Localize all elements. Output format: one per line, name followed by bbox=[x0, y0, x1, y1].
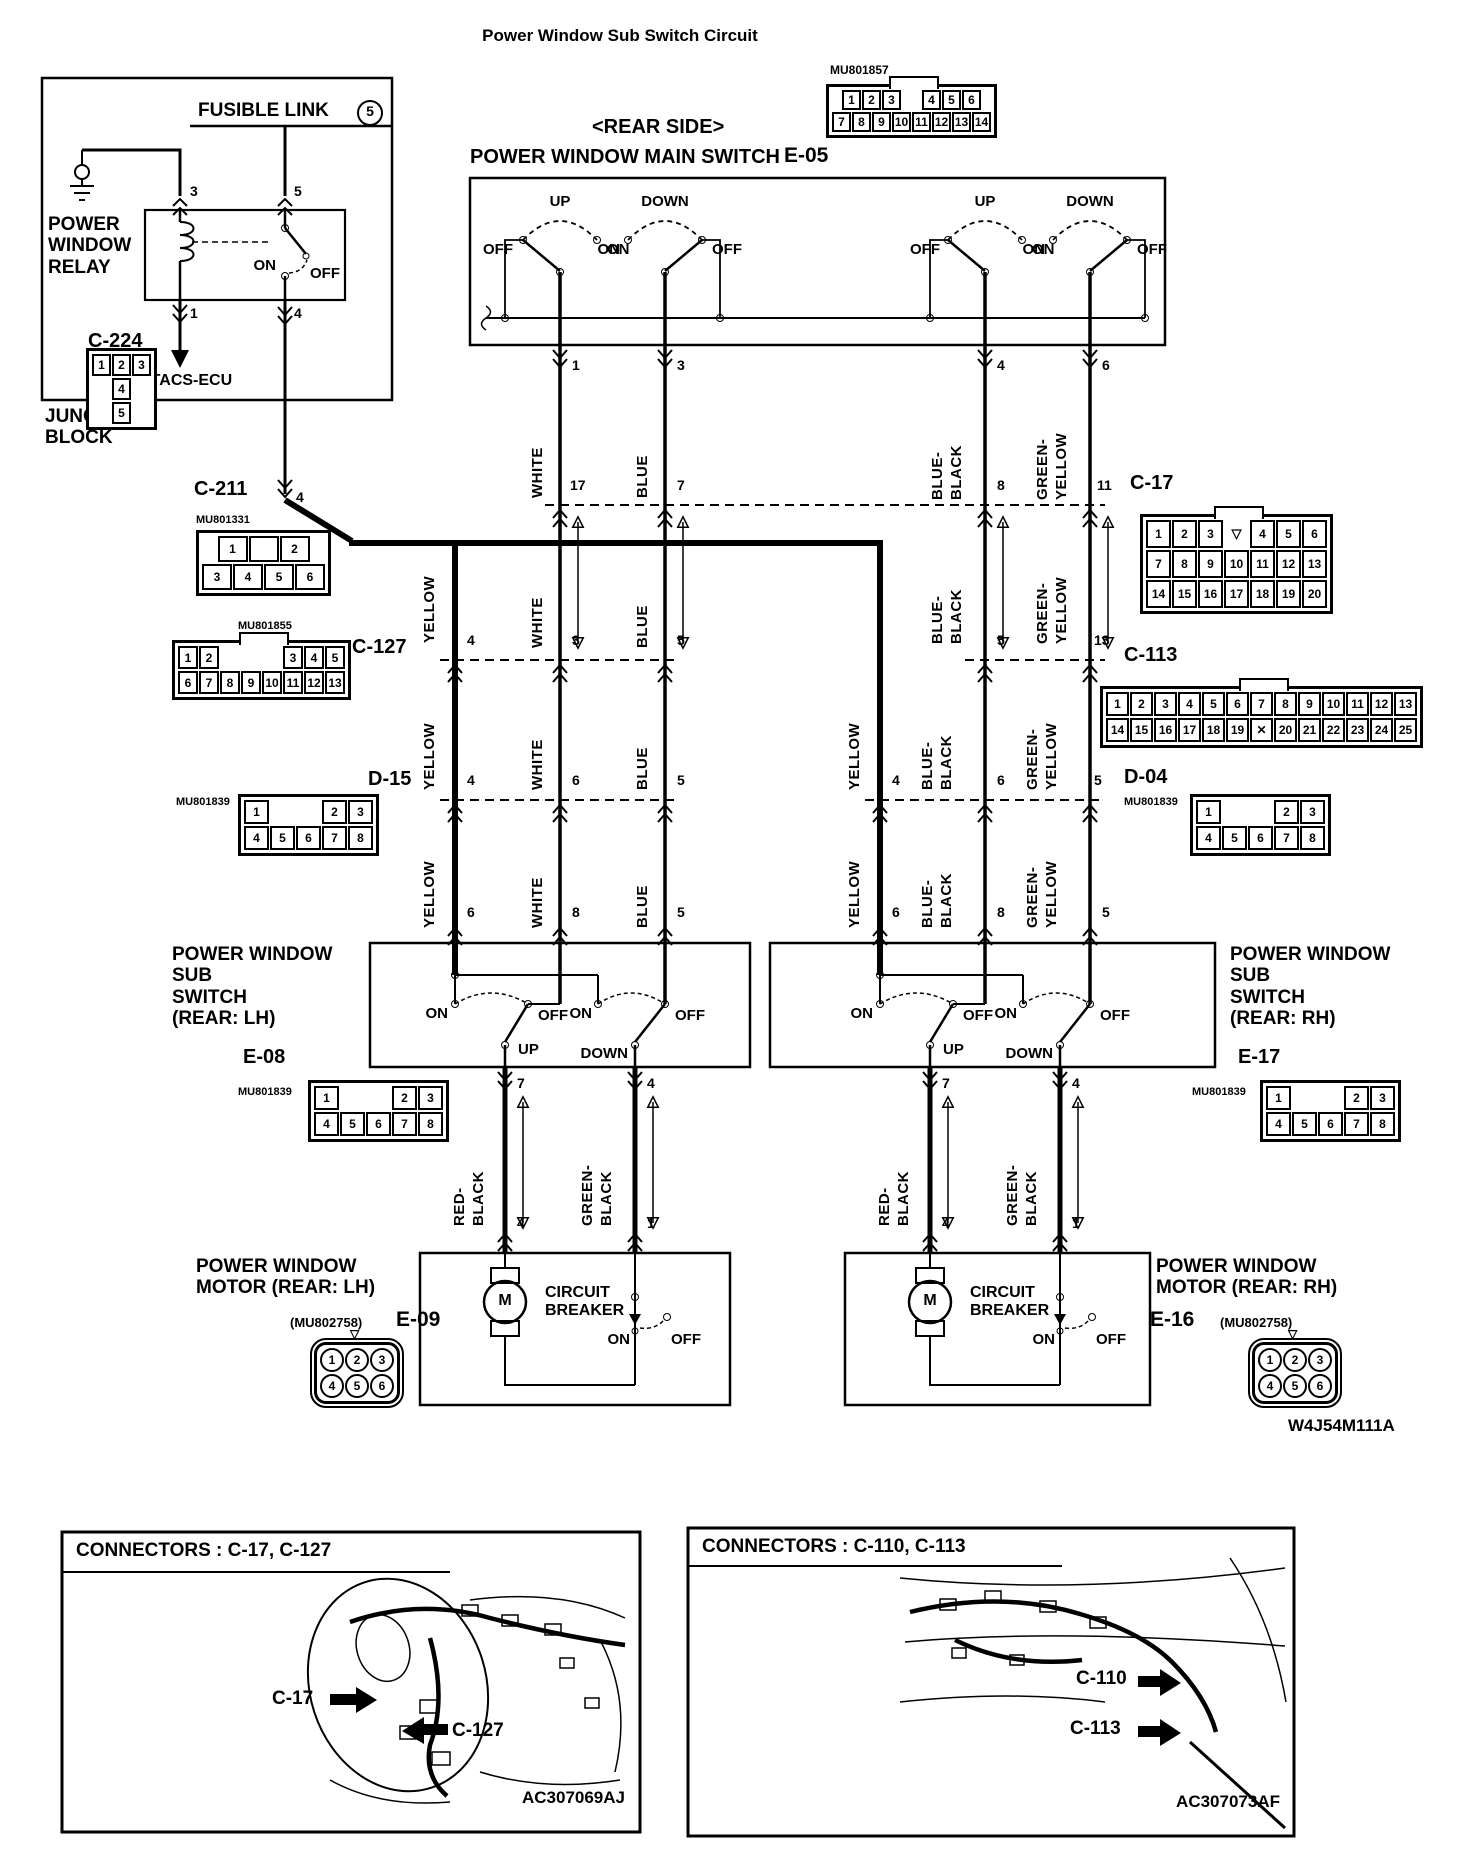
motor-rh-box bbox=[845, 1253, 1150, 1405]
e05-name: E-05 bbox=[784, 144, 828, 168]
wire-label-red-black: RED- BLACK bbox=[875, 1098, 913, 1226]
wire-yellow-feed bbox=[285, 500, 883, 943]
sw2-on: ON bbox=[562, 242, 620, 259]
relay-off-label: OFF bbox=[310, 266, 340, 283]
breaker-rh-off: OFF bbox=[1096, 1332, 1126, 1349]
d15-pin-4: 4 bbox=[467, 773, 475, 789]
d04-pin-6: 6 bbox=[997, 773, 1005, 789]
e08-out-pin-7: 7 bbox=[517, 1076, 525, 1092]
wire-label-green-yellow: GREEN- YELLOW bbox=[1023, 804, 1061, 928]
wire-label-blue: BLUE bbox=[633, 378, 655, 498]
wire-label-white: WHITE bbox=[528, 378, 550, 498]
e05-out-pin-1: 1 bbox=[572, 358, 580, 374]
c113-connector: 12345678910111213141516171819✕2021222324… bbox=[1100, 686, 1423, 748]
d15-pin-6: 6 bbox=[572, 773, 580, 789]
motor-lh-box bbox=[420, 1253, 730, 1405]
e17-in-pin-8: 8 bbox=[997, 905, 1005, 921]
d04-name: D-04 bbox=[1124, 766, 1167, 788]
rear-harness-illustration bbox=[900, 1558, 1286, 1828]
e17-out-pin-7: 7 bbox=[942, 1076, 950, 1092]
sw4-off: OFF bbox=[1137, 242, 1167, 259]
rear-side-label: <REAR SIDE> bbox=[592, 116, 724, 138]
e05-out-pin-4: 4 bbox=[997, 358, 1005, 374]
c113-pin-5: 5 bbox=[997, 633, 1005, 649]
c211-name: C-211 bbox=[194, 478, 247, 500]
d15-name: D-15 bbox=[368, 768, 411, 790]
e05-connector: 1234567891011121314 bbox=[826, 84, 997, 138]
d04-connector: 12345678 bbox=[1190, 794, 1331, 856]
page-title: Power Window Sub Switch Circuit bbox=[385, 26, 855, 45]
sw2-off: OFF bbox=[712, 242, 742, 259]
relay-pin-5: 5 bbox=[294, 184, 302, 200]
e09-name: E-09 bbox=[396, 1308, 440, 1332]
wire-label-yellow: YELLOW bbox=[845, 808, 867, 928]
d15-connector: 12345678 bbox=[238, 794, 379, 856]
footer-right-c110-tag: C-110 bbox=[1076, 1668, 1127, 1689]
c127-pin-3: 3 bbox=[572, 633, 580, 649]
sw2-dir: DOWN bbox=[625, 194, 705, 211]
breaker-lh-off: OFF bbox=[671, 1332, 701, 1349]
rh-sw2-off: OFF bbox=[1100, 1008, 1130, 1025]
e16-pin-1: 1 bbox=[1072, 1216, 1080, 1232]
rh-sw2-on: ON bbox=[973, 1006, 1017, 1023]
c17-pin-17: 17 bbox=[570, 478, 586, 494]
rh-up-label: UP bbox=[943, 1042, 964, 1059]
e16-part: (MU802758) bbox=[1220, 1316, 1292, 1331]
c113-pin-13: 13 bbox=[1094, 633, 1110, 649]
rh-down-label: DOWN bbox=[983, 1046, 1053, 1063]
wire-label-yellow: YELLOW bbox=[845, 668, 867, 790]
wire-label-green-black: GREEN- BLACK bbox=[578, 1098, 616, 1226]
footer-right-c113-tag: C-113 bbox=[1070, 1718, 1121, 1739]
diagram-id: W4J54M111A bbox=[1288, 1416, 1395, 1435]
relay-label: POWER WINDOW RELAY bbox=[48, 214, 131, 278]
wire-label-blue-black: BLUE- BLACK bbox=[918, 664, 956, 790]
e08-name: E-08 bbox=[243, 1046, 285, 1068]
motor-entry-chevrons bbox=[498, 1234, 1067, 1251]
c211-connector: 123456 bbox=[196, 530, 331, 596]
e08-connector: 12345678 bbox=[308, 1080, 449, 1142]
c17-pin-8: 8 bbox=[997, 478, 1005, 494]
wire-label-yellow: YELLOW bbox=[420, 668, 442, 790]
d04-pin-5: 5 bbox=[1094, 773, 1102, 789]
main-switch-name: POWER WINDOW MAIN SWITCH bbox=[470, 146, 780, 168]
relay-outputs bbox=[171, 300, 292, 497]
d04-part: MU801839 bbox=[1124, 796, 1178, 808]
footer-right-box bbox=[688, 1528, 1294, 1836]
wire-label-yellow: YELLOW bbox=[420, 808, 442, 928]
ground-icon bbox=[70, 150, 94, 200]
e16-connector: 123456 bbox=[1252, 1342, 1338, 1404]
e17-part: MU801839 bbox=[1192, 1086, 1246, 1098]
wire-label-blue-black: BLUE- BLACK bbox=[928, 512, 966, 644]
footer-left-header: CONNECTORS : C-17, C-127 bbox=[76, 1540, 331, 1561]
sub-switch-exit-chevrons bbox=[498, 1072, 1067, 1089]
wire-label-white: WHITE bbox=[528, 668, 550, 790]
sub-switch-lh-name: POWER WINDOW SUB SWITCH (REAR: LH) bbox=[172, 944, 332, 1029]
diagram-artwork bbox=[0, 0, 1472, 1854]
c127-pin-4: 4 bbox=[467, 633, 475, 649]
e17-connector: 12345678 bbox=[1260, 1080, 1401, 1142]
e09-connector: 123456 bbox=[314, 1342, 400, 1404]
footer-left-c127-tag: C-127 bbox=[452, 1720, 504, 1741]
footer-right-header: CONNECTORS : C-110, C-113 bbox=[702, 1536, 966, 1557]
sw3-off: OFF bbox=[880, 242, 940, 259]
e08-part: MU801839 bbox=[238, 1086, 292, 1098]
wire-label-blue-black: BLUE- BLACK bbox=[918, 804, 956, 928]
d04-pin-4: 4 bbox=[892, 773, 900, 789]
sw1-off: OFF bbox=[455, 242, 513, 259]
lh-down-label: DOWN bbox=[558, 1046, 628, 1063]
box-exit-chevrons bbox=[553, 350, 1097, 367]
c17-name: C-17 bbox=[1130, 472, 1173, 494]
c17-pin-7: 7 bbox=[677, 478, 685, 494]
footer-right-code: AC307073AF bbox=[1150, 1792, 1280, 1811]
e09-pin-1: 1 bbox=[647, 1216, 655, 1232]
e17-name: E-17 bbox=[1238, 1046, 1280, 1068]
footer-left-code: AC307069AJ bbox=[495, 1788, 625, 1807]
breaker-lh-on: ON bbox=[596, 1332, 630, 1349]
wiring-diagram-page: Power Window Sub Switch Circuit FUSIBLE … bbox=[0, 0, 1472, 1854]
c17-connector: 123▽4567891011121314151617181920 bbox=[1140, 514, 1333, 614]
wire-label-green-yellow: GREEN- YELLOW bbox=[1033, 512, 1071, 644]
e17-in-pin-5: 5 bbox=[1102, 905, 1110, 921]
dashboard-illustration bbox=[281, 1555, 625, 1815]
e08-in-pin-8: 8 bbox=[572, 905, 580, 921]
wire-label-blue: BLUE bbox=[633, 668, 655, 790]
wire-label-blue-black: BLUE- BLACK bbox=[928, 374, 966, 500]
motor-lh-name: POWER WINDOW MOTOR (REAR: LH) bbox=[196, 1256, 375, 1299]
rh-sw1-on: ON bbox=[829, 1006, 873, 1023]
wire-label-green-yellow: GREEN- YELLOW bbox=[1033, 374, 1071, 500]
d15-pin-5: 5 bbox=[677, 773, 685, 789]
wire-label-white: WHITE bbox=[528, 808, 550, 928]
lh-sw1-on: ON bbox=[404, 1006, 448, 1023]
wire-label-green-black: GREEN- BLACK bbox=[1003, 1098, 1041, 1226]
relay-pin-3: 3 bbox=[190, 184, 198, 200]
d15-part: MU801839 bbox=[176, 796, 230, 808]
sw3-dir: UP bbox=[952, 194, 1018, 211]
e08-out-pin-4: 4 bbox=[647, 1076, 655, 1092]
circuit-breaker-rh-label: CIRCUIT BREAKER bbox=[970, 1284, 1049, 1320]
c211-part: MU801331 bbox=[196, 514, 250, 526]
c211-pin: 4 bbox=[296, 490, 304, 506]
wire-label-red-black: RED- BLACK bbox=[450, 1098, 488, 1226]
wire-label-blue: BLUE bbox=[633, 548, 655, 648]
e16-name: E-16 bbox=[1150, 1308, 1194, 1332]
wire-label-yellow: YELLOW bbox=[420, 518, 442, 643]
c127-pin-5: 5 bbox=[677, 633, 685, 649]
c127-connector: 12345678910111213 bbox=[172, 640, 351, 700]
wire-label-white: WHITE bbox=[528, 548, 550, 648]
e05-out-pin-6: 6 bbox=[1102, 358, 1110, 374]
breaker-rh-on: ON bbox=[1021, 1332, 1055, 1349]
relay-pin-1: 1 bbox=[190, 306, 198, 322]
sw1-dir: UP bbox=[527, 194, 593, 211]
c113-name: C-113 bbox=[1124, 644, 1177, 666]
e05-out-pin-3: 3 bbox=[677, 358, 685, 374]
circuit-breaker-lh-label: CIRCUIT BREAKER bbox=[545, 1284, 624, 1320]
relay-on-label: ON bbox=[240, 258, 276, 275]
c127-part: MU801855 bbox=[238, 620, 292, 632]
wire-label-green-yellow: GREEN- YELLOW bbox=[1023, 664, 1061, 790]
e17-in-pin-6: 6 bbox=[892, 905, 900, 921]
fusible-link-label: FUSIBLE LINK bbox=[198, 100, 329, 121]
e08-in-pin-6: 6 bbox=[467, 905, 475, 921]
e17-out-pin-4: 4 bbox=[1072, 1076, 1080, 1092]
power-window-relay-box bbox=[145, 210, 345, 300]
motor-rh-m: M bbox=[918, 1292, 942, 1310]
e05-part: MU801857 bbox=[830, 64, 889, 77]
sw4-on: ON bbox=[985, 242, 1045, 259]
e09-pin-4: 4 bbox=[517, 1216, 525, 1232]
footer-left-c17-tag: C-17 bbox=[272, 1688, 313, 1709]
c127-name: C-127 bbox=[352, 636, 406, 658]
lh-up-label: UP bbox=[518, 1042, 539, 1059]
fusible-link-number: 5 bbox=[358, 104, 382, 120]
c224-connector: 12345 bbox=[86, 348, 157, 430]
e08-in-pin-5: 5 bbox=[677, 905, 685, 921]
e16-pin-4: 4 bbox=[942, 1216, 950, 1232]
motor-rh-name: POWER WINDOW MOTOR (REAR: RH) bbox=[1156, 1256, 1337, 1299]
footer-left-box bbox=[62, 1532, 640, 1832]
motor-lh-m: M bbox=[493, 1292, 517, 1310]
wire-label-blue: BLUE bbox=[633, 808, 655, 928]
c17-pin-11: 11 bbox=[1097, 478, 1112, 494]
lh-sw2-off: OFF bbox=[675, 1008, 705, 1025]
sw4-dir: DOWN bbox=[1050, 194, 1130, 211]
lh-sw2-on: ON bbox=[548, 1006, 592, 1023]
sub-switch-rh-name: POWER WINDOW SUB SWITCH (REAR: RH) bbox=[1230, 944, 1390, 1029]
relay-pin-4: 4 bbox=[294, 306, 302, 322]
relay-wiring bbox=[82, 126, 292, 215]
